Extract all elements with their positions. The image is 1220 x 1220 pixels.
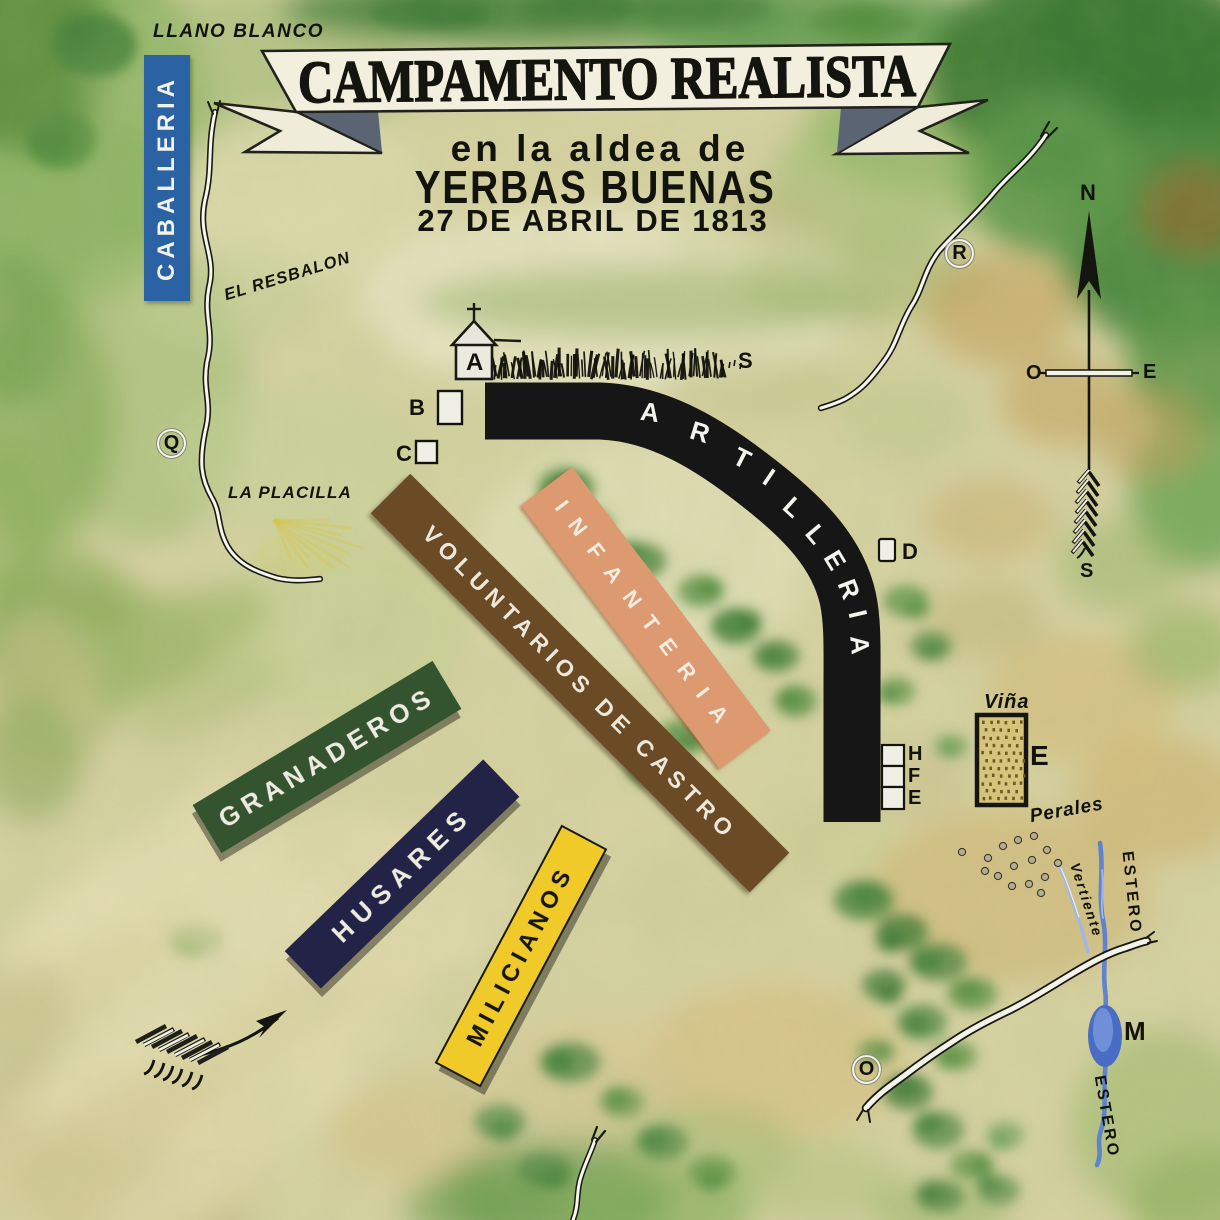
svg-text:CAMPAMENTO REALISTA: CAMPAMENTO REALISTA: [298, 43, 917, 115]
